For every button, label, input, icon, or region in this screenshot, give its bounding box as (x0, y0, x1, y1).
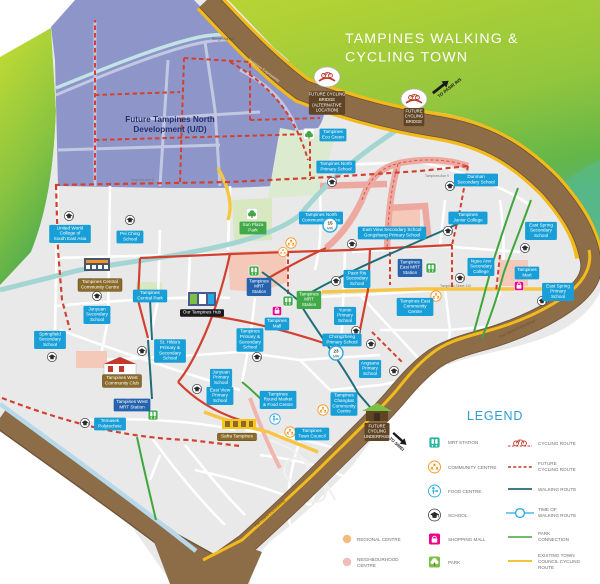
svg-text:LOCATION): LOCATION) (316, 108, 339, 113)
svg-text:Junyuan: Junyuan (212, 369, 230, 374)
svg-text:Community Club: Community Club (105, 380, 139, 385)
svg-text:East View Secondary School: East View Secondary School (363, 227, 422, 232)
svg-text:Tampines: Tampines (140, 290, 160, 295)
svg-text:Town Council: Town Council (298, 433, 325, 438)
svg-text:Secondary: Secondary (39, 337, 62, 342)
svg-text:MRT: MRT (254, 284, 264, 289)
svg-text:EXISTING TOWN: EXISTING TOWN (538, 553, 575, 558)
svg-text:SCHOOL: SCHOOL (448, 513, 468, 518)
svg-text:MRT STATION: MRT STATION (448, 440, 478, 445)
svg-text:NEIGHBOURHOOD: NEIGHBOURHOOD (357, 557, 399, 562)
svg-text:Park: Park (248, 227, 258, 232)
svg-text:CYCLING ROUTE: CYCLING ROUTE (538, 467, 576, 472)
svg-text:FUTURE: FUTURE (369, 423, 386, 428)
svg-text:Primary: Primary (362, 366, 379, 371)
svg-text:Community: Community (332, 403, 356, 408)
svg-text:Mall: Mall (273, 323, 281, 328)
svg-text:CYCLING ROUTE: CYCLING ROUTE (538, 441, 576, 446)
svg-text:Sun Plaza: Sun Plaza (243, 222, 264, 227)
svg-text:MIN: MIN (333, 355, 340, 359)
svg-text:Primary: Primary (337, 313, 354, 318)
svg-text:Pei Ching: Pei Ching (120, 231, 140, 236)
svg-text:Primary School: Primary School (320, 166, 351, 171)
svg-text:FUTURE: FUTURE (406, 108, 423, 113)
svg-text:Development (U/D): Development (U/D) (133, 125, 207, 134)
svg-text:Community: Community (403, 304, 427, 309)
svg-text:Secondary School: Secondary School (457, 179, 494, 184)
svg-text:Secondary: Secondary (239, 339, 262, 344)
svg-text:Future Tampines North: Future Tampines North (125, 115, 214, 124)
svg-text:College of: College of (60, 231, 81, 236)
svg-text:& Food Centre: & Food Centre (263, 402, 293, 407)
svg-text:COMMUNITY CENTRE: COMMUNITY CENTRE (448, 465, 496, 470)
svg-text:Secondary: Secondary (86, 312, 109, 317)
svg-text:College: College (473, 269, 489, 274)
svg-text:East Spring: East Spring (546, 283, 570, 288)
svg-text:Eco Green: Eco Green (322, 134, 344, 139)
svg-text:Ngee Ann: Ngee Ann (471, 258, 492, 263)
svg-text:Station: Station (252, 289, 267, 294)
svg-text:Secondary: Secondary (159, 350, 182, 355)
svg-text:Community Centre: Community Centre (81, 284, 120, 289)
svg-text:Primary &: Primary & (160, 345, 180, 350)
svg-text:East View: East View (210, 387, 231, 392)
svg-text:LEGEND: LEGEND (467, 409, 523, 423)
svg-text:Round Market: Round Market (264, 397, 294, 402)
svg-text:Secondary: Secondary (346, 276, 369, 281)
svg-text:Tampines East: Tampines East (400, 298, 431, 303)
svg-text:Springfield: Springfield (39, 331, 61, 336)
svg-text:Station: Station (302, 302, 317, 307)
svg-text:Safra Tampines: Safra Tampines (221, 434, 254, 439)
svg-text:Pasir Ris: Pasir Ris (348, 270, 367, 275)
svg-text:Angsana: Angsana (361, 360, 380, 365)
svg-text:Tampines: Tampines (249, 278, 269, 283)
svg-text:FOOD CENTRE: FOOD CENTRE (448, 489, 481, 494)
svg-text:Tampines: Tampines (240, 329, 260, 334)
svg-text:East Spring: East Spring (529, 222, 553, 227)
svg-text:Primary: Primary (550, 289, 567, 294)
svg-text:PARK: PARK (448, 560, 461, 565)
svg-text:Tampines West: Tampines West (116, 399, 148, 404)
svg-text:Secondary: Secondary (530, 228, 553, 233)
svg-text:MIN: MIN (327, 227, 334, 231)
svg-text:PARK: PARK (538, 531, 551, 536)
svg-text:(ALTERNATIVE: (ALTERNATIVE (312, 102, 342, 107)
svg-text:15: 15 (327, 221, 333, 226)
svg-text:Changkat: Changkat (334, 398, 354, 403)
svg-text:Central Park: Central Park (137, 295, 163, 300)
svg-text:23: 23 (333, 349, 339, 354)
svg-text:WALKING ROUTE: WALKING ROUTE (538, 513, 576, 518)
svg-text:Tampines Street 110: Tampines Street 110 (440, 284, 471, 288)
svg-text:Centre: Centre (337, 409, 351, 414)
svg-text:Tampines: Tampines (267, 318, 287, 323)
svg-text:Junior College: Junior College (453, 217, 483, 222)
svg-text:School: School (213, 398, 227, 403)
svg-text:CYCLING: CYCLING (368, 429, 387, 434)
svg-text:Temasek: Temasek (101, 418, 120, 423)
svg-text:WALKING ROUTE: WALKING ROUTE (538, 487, 576, 492)
svg-text:FUTURE: FUTURE (538, 461, 557, 466)
svg-text:UNDERPASS: UNDERPASS (364, 434, 390, 439)
svg-text:School: School (163, 356, 177, 361)
svg-text:Tampines: Tampines (400, 259, 420, 264)
svg-text:Yumin: Yumin (339, 307, 352, 312)
svg-text:MRT: MRT (304, 297, 314, 302)
svg-text:CYCLING TOWN: CYCLING TOWN (345, 50, 468, 66)
svg-text:Tampines: Tampines (299, 291, 319, 296)
svg-text:CENTRE: CENTRE (357, 563, 376, 568)
svg-text:Tampines Ave 9: Tampines Ave 9 (425, 174, 449, 178)
svg-text:Primary: Primary (212, 393, 229, 398)
svg-text:REGIONAL CENTRE: REGIONAL CENTRE (357, 537, 401, 542)
svg-text:School: School (123, 236, 137, 241)
svg-text:South East Asia: South East Asia (54, 236, 87, 241)
svg-text:TAMPINES WALKING &: TAMPINES WALKING & (345, 31, 519, 47)
svg-text:St. Hilda's: St. Hilda's (160, 340, 181, 345)
svg-text:Tampines: Tampines (323, 129, 343, 134)
svg-text:School: School (534, 233, 548, 238)
svg-text:ROUTE: ROUTE (538, 565, 554, 570)
svg-text:School: School (338, 318, 352, 323)
svg-text:Tampines West: Tampines West (106, 375, 138, 380)
svg-text:Tampines: Tampines (517, 267, 537, 272)
svg-text:Primary School: Primary School (326, 339, 357, 344)
svg-text:Tampines North: Tampines North (320, 161, 353, 166)
svg-text:Polytechnic: Polytechnic (98, 423, 122, 428)
svg-text:School: School (214, 380, 228, 385)
svg-text:Station: Station (403, 270, 418, 275)
svg-text:Mart: Mart (522, 272, 532, 277)
svg-text:Our Tampines Hub: Our Tampines Hub (183, 310, 222, 315)
svg-text:CYCLING: CYCLING (405, 114, 424, 119)
svg-text:Tampines North: Tampines North (305, 212, 338, 217)
svg-text:School: School (90, 317, 104, 322)
svg-text:Junyuan: Junyuan (88, 306, 106, 311)
svg-text:Dunman: Dunman (467, 174, 485, 179)
svg-text:Tampines Ave 9: Tampines Ave 9 (130, 178, 154, 182)
svg-text:School: School (350, 281, 364, 286)
svg-text:Primary &: Primary & (240, 334, 260, 339)
svg-text:Tampines: Tampines (302, 428, 322, 433)
svg-text:School: School (43, 342, 57, 347)
svg-text:COUNCIL CYCLING: COUNCIL CYCLING (538, 559, 581, 564)
svg-text:School: School (243, 345, 257, 350)
svg-text:BRIDGE: BRIDGE (319, 97, 335, 102)
svg-text:East MRT: East MRT (400, 265, 421, 270)
svg-text:Tampines: Tampines (458, 212, 478, 217)
svg-text:CONNECTION: CONNECTION (538, 537, 569, 542)
svg-text:Centre: Centre (408, 309, 422, 314)
svg-text:Secondary: Secondary (470, 264, 493, 269)
svg-text:School: School (363, 371, 377, 376)
svg-text:Gongshang Primary School: Gongshang Primary School (364, 232, 420, 237)
svg-text:United World: United World (57, 225, 84, 230)
svg-text:SHOPPING MALL: SHOPPING MALL (448, 537, 486, 542)
svg-text:BRIDGE: BRIDGE (406, 119, 422, 124)
svg-text:Chongzheng: Chongzheng (329, 334, 355, 339)
svg-text:Tampines: Tampines (334, 393, 354, 398)
svg-text:School: School (551, 294, 565, 299)
svg-text:Primary: Primary (213, 375, 230, 380)
svg-text:TIME OF: TIME OF (538, 507, 557, 512)
svg-text:Tampines Central: Tampines Central (82, 279, 118, 284)
svg-text:Sungei Api Api: Sungei Api Api (212, 37, 234, 41)
svg-text:Tampines: Tampines (268, 391, 288, 396)
svg-text:MRT Station: MRT Station (119, 404, 145, 409)
svg-text:FUTURE CYCLING: FUTURE CYCLING (309, 92, 346, 97)
